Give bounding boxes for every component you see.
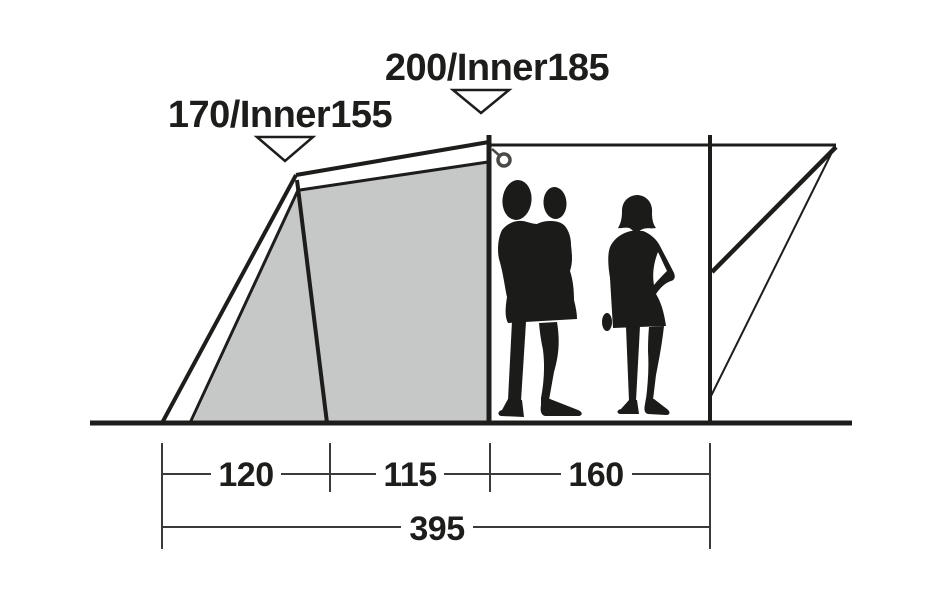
adult-right-foot <box>541 397 582 416</box>
person-head <box>618 195 656 232</box>
adult-head <box>500 179 533 222</box>
inner-tent-panel <box>193 161 488 421</box>
triangle-down-icon-center <box>453 90 509 113</box>
guy-line <box>711 146 835 396</box>
person-hand <box>602 313 612 331</box>
height-label-center: 200/Inner185 <box>385 47 610 89</box>
dimension-label-segment-3: 160 <box>568 456 623 494</box>
adult-left-foot <box>498 399 524 417</box>
triangle-down-icon-left <box>257 137 313 161</box>
person-right-leg <box>646 326 664 400</box>
adult-right-leg <box>539 322 559 400</box>
dimension-label-segment-2: 115 <box>383 456 436 494</box>
child-head <box>542 186 567 220</box>
person-right-foot <box>644 398 669 415</box>
person-left-leg <box>626 326 640 401</box>
front-brace-line <box>712 147 836 272</box>
person-silhouette <box>602 195 675 415</box>
guy-ring-icon <box>498 154 510 166</box>
adult-left-leg <box>508 321 526 401</box>
dimension-lines: 120 115 160 395 <box>162 443 710 549</box>
tent-dimension-diagram: 170/Inner155 200/Inner185 120 115 160 39… <box>0 0 950 600</box>
adult-child-body <box>498 221 577 323</box>
person-body <box>608 231 674 328</box>
dimension-label-segment-1: 120 <box>218 456 273 494</box>
person-left-foot <box>617 400 639 414</box>
person-with-child-silhouette <box>498 179 582 417</box>
dimension-label-total: 395 <box>409 510 464 548</box>
tent-diagram-canvas: 170/Inner155 200/Inner185 120 115 160 39… <box>0 0 950 600</box>
height-label-left: 170/Inner155 <box>168 94 393 136</box>
